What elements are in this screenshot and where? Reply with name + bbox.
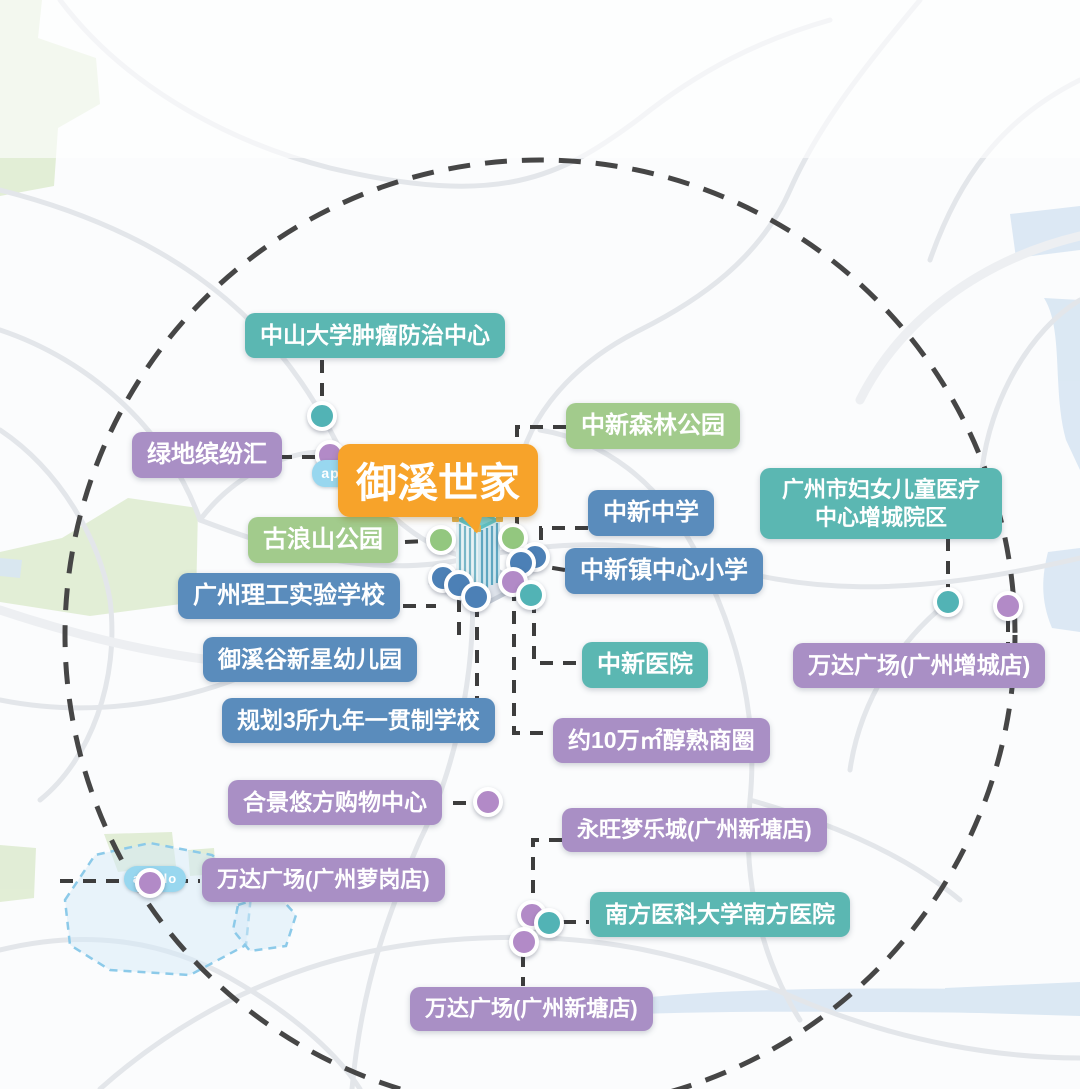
- dot-park-west: [426, 525, 456, 555]
- dot-hejing: [473, 787, 503, 817]
- dot-wanda-zengcheng: [993, 591, 1023, 621]
- poi-dots: [0, 0, 1080, 1089]
- dot-cancer-center: [307, 401, 337, 431]
- center-property-label: 御溪世家: [338, 444, 538, 517]
- dot-school-sw3: [461, 582, 491, 612]
- dot-wanda-xintang: [509, 927, 539, 957]
- dot-women-children: [933, 587, 963, 617]
- dot-wanda-luogang: [135, 868, 165, 898]
- dot-zhongxin-hospital: [516, 580, 546, 610]
- dot-southern-hospital: [534, 908, 564, 938]
- infographic-map: apollo 广州市黄埔自动驾驶 公交示范区(知识城) apollo 黄埔智能网…: [0, 0, 1080, 1089]
- label-pointer-tail: [459, 511, 486, 535]
